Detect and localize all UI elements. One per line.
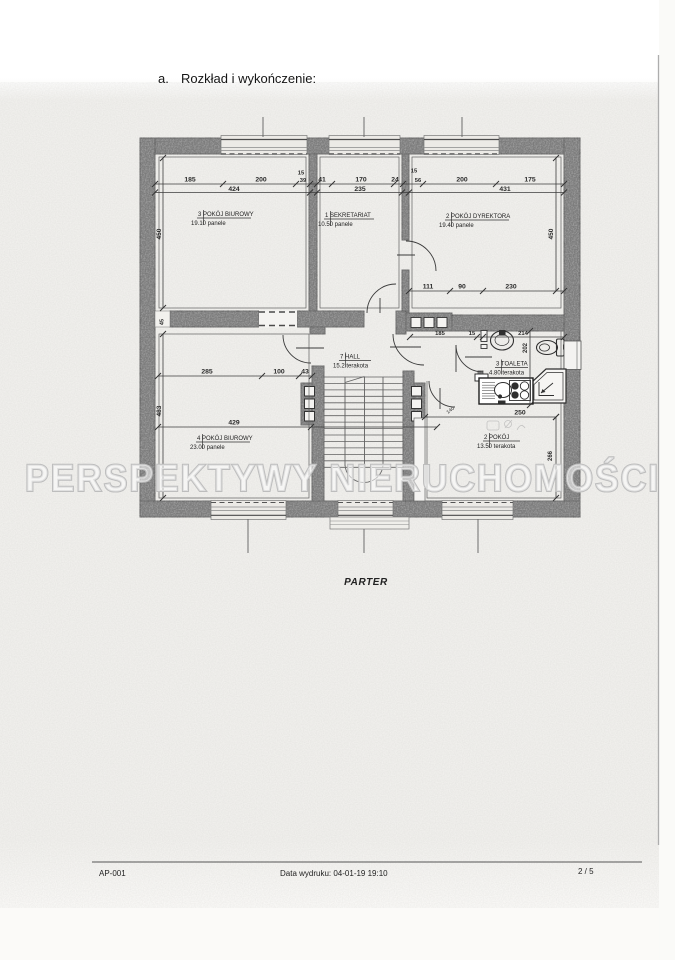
- svg-text:19.40 panele: 19.40 panele: [439, 223, 474, 229]
- svg-text:175: 175: [524, 177, 536, 184]
- svg-text:15: 15: [411, 169, 418, 175]
- svg-text:15: 15: [469, 331, 476, 337]
- svg-text:170: 170: [355, 177, 367, 184]
- svg-text:45: 45: [160, 319, 166, 325]
- svg-text:202: 202: [523, 342, 529, 353]
- svg-text:41: 41: [318, 177, 326, 184]
- svg-text:250: 250: [514, 410, 526, 417]
- svg-text:111: 111: [423, 284, 434, 291]
- svg-text:2 POKÓJ DYREKTORA: 2 POKÓJ DYREKTORA: [446, 213, 510, 220]
- svg-text:3 POKÓJ BIUROWY: 3 POKÓJ BIUROWY: [198, 211, 254, 218]
- svg-text:4.80 terakota: 4.80 terakota: [489, 371, 525, 377]
- svg-text:a.: a.: [158, 71, 169, 86]
- svg-text:285: 285: [201, 369, 213, 376]
- svg-text:90: 90: [458, 284, 466, 291]
- svg-text:429: 429: [228, 420, 240, 427]
- svg-text:2 / 5: 2 / 5: [578, 867, 594, 876]
- svg-text:Rozkład i wykończenie:: Rozkład i wykończenie:: [181, 71, 316, 86]
- svg-text:PARTER: PARTER: [344, 577, 388, 588]
- svg-text:431: 431: [499, 186, 511, 193]
- svg-text:Data wydruku: 04-01-19 19:10: Data wydruku: 04-01-19 19:10: [280, 869, 388, 878]
- svg-text:1 SEKRETARIAT: 1 SEKRETARIAT: [325, 213, 371, 219]
- svg-text:3 TOALETA: 3 TOALETA: [496, 362, 528, 368]
- svg-text:19.10 panele: 19.10 panele: [191, 221, 226, 227]
- svg-text:185: 185: [184, 177, 196, 184]
- svg-text:200: 200: [456, 177, 468, 184]
- svg-text:43: 43: [301, 369, 309, 376]
- svg-text:PERSPEKTYWY NIERUCHOMOŚCI: PERSPEKTYWY NIERUCHOMOŚCI: [25, 456, 660, 499]
- svg-text:23.00 panele: 23.00 panele: [190, 445, 225, 451]
- svg-text:24: 24: [391, 177, 399, 184]
- svg-text:15.2 terakota: 15.2 terakota: [333, 364, 369, 370]
- svg-text:450: 450: [548, 228, 555, 239]
- svg-text:4 POKÓJ BIUROWY: 4 POKÓJ BIUROWY: [197, 435, 253, 442]
- svg-text:483: 483: [156, 405, 163, 416]
- svg-text:56: 56: [415, 178, 422, 184]
- svg-text:100: 100: [273, 369, 285, 376]
- svg-text:185: 185: [435, 331, 445, 337]
- svg-text:13.50 terakota: 13.50 terakota: [477, 444, 516, 450]
- svg-text:200: 200: [255, 177, 267, 184]
- svg-text:230: 230: [505, 284, 517, 291]
- svg-text:450: 450: [156, 228, 163, 239]
- svg-text:15: 15: [298, 171, 305, 177]
- svg-text:235: 235: [354, 186, 366, 193]
- svg-text:AP-001: AP-001: [99, 869, 126, 878]
- svg-text:39: 39: [300, 178, 307, 184]
- svg-text:2 POKÓJ: 2 POKÓJ: [484, 434, 509, 441]
- svg-text:10.50 panele: 10.50 panele: [318, 222, 353, 228]
- svg-text:7 HALL: 7 HALL: [340, 355, 361, 361]
- svg-text:424: 424: [228, 186, 240, 193]
